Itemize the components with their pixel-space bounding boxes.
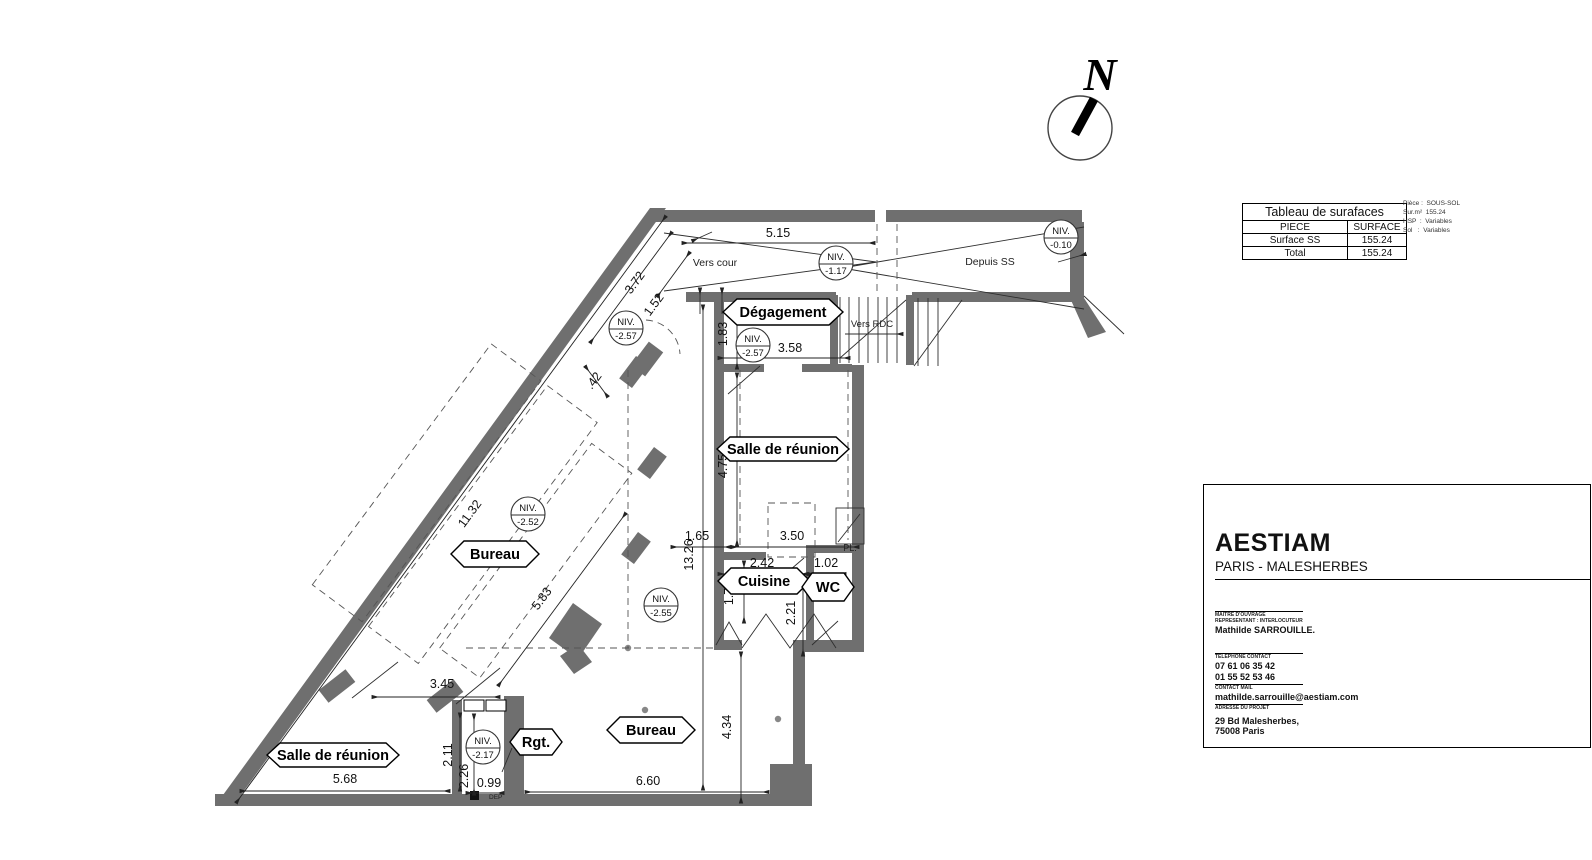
floor-plan-page: .wall{fill:#6f6f6f;} .thin{stroke:#2e2e2…: [0, 0, 1592, 860]
niv-label: NIV.: [744, 334, 762, 345]
dimension-label: 1.83: [716, 322, 730, 346]
cell-piece: Surface SS: [1243, 234, 1348, 247]
mail-value: mathilde.sarrouille@aestiam.com: [1215, 692, 1358, 702]
owner-name: Mathilde SARROUILLE.: [1215, 625, 1315, 635]
dimension-label: 6.60: [636, 774, 660, 788]
dimension-label: 3.50: [780, 529, 804, 543]
dimension-label: 1.52: [641, 291, 667, 319]
dimension-label: 2.21: [784, 601, 798, 625]
niv-label: NIV.: [519, 503, 537, 514]
room-label-text: Bureau: [470, 547, 520, 563]
niv-marker: NIV. -0.10: [1044, 220, 1078, 254]
note-surface: Sur.m² 155.24: [1403, 208, 1460, 217]
dimension-label: 0.99: [477, 776, 501, 790]
room-label-text: Salle de réunion: [727, 442, 839, 458]
room-label-text: WC: [816, 580, 841, 596]
niv-label: NIV.: [474, 736, 492, 747]
owner-label-2: REPRESENTANT : INTERLOCUTEUR: [1215, 619, 1303, 625]
room-label-rgt: Rgt.: [510, 729, 562, 755]
niv-value: -0.10: [1050, 240, 1072, 251]
room-label-text: Bureau: [626, 723, 676, 739]
room-label-text: Rgt.: [522, 735, 550, 751]
room-label-wc: WC: [802, 573, 854, 601]
niv-marker: NIV. -2.52: [511, 497, 545, 531]
niv-value: -2.17: [472, 750, 494, 761]
compass-needle: [1075, 99, 1094, 134]
niv-label: NIV.: [1052, 226, 1070, 237]
dimension-label: 3.45: [430, 677, 454, 691]
niv-label: NIV.: [617, 317, 635, 328]
project-name: PARIS - MALESHERBES: [1215, 559, 1368, 574]
niv-marker: NIV. -2.57: [736, 328, 770, 362]
surface-table-col-surface: SURFACE: [1348, 221, 1407, 234]
dimension-label: 3.58: [778, 341, 802, 355]
dimension-label: 4.34: [720, 715, 734, 739]
vers-cour-label: Vers cour: [693, 257, 738, 269]
pl-label: PL.: [843, 543, 857, 553]
dimension-label: 1.02: [814, 556, 838, 570]
dimension-label: 11.32: [455, 497, 484, 530]
north-label: N: [1082, 49, 1118, 100]
niv-marker: NIV. -2.57: [609, 311, 643, 345]
mail-label: CONTACT MAIL: [1215, 686, 1253, 692]
cell-piece: Total: [1243, 247, 1348, 260]
dimension-label: 5.15: [766, 226, 790, 240]
dimension-label: 3.72: [622, 269, 648, 297]
phone-label: TELEPHONE CONTACT: [1215, 655, 1271, 661]
company-name: AESTIAM: [1215, 529, 1331, 558]
note-sol: Sol : Variables: [1403, 226, 1460, 235]
dimension-label: 5.68: [333, 772, 357, 786]
room-label-bureau-2: Bureau: [607, 717, 695, 743]
phone-1: 07 61 06 35 42: [1215, 661, 1275, 671]
niv-marker: NIV. -2.17: [466, 730, 500, 764]
room-label-cuisine: Cuisine: [718, 568, 810, 594]
table-row: Total 155.24: [1243, 247, 1407, 260]
room-label-bureau: Bureau: [451, 541, 539, 567]
table-row: Surface SS 155.24: [1243, 234, 1407, 247]
surface-table: Tableau de surafaces PIECE SURFACE Surfa…: [1242, 203, 1407, 260]
surface-table-notes: Pièce : SOUS-SOLSur.m² 155.24HSP : Varia…: [1403, 199, 1460, 235]
address-line-2: 75008 Paris: [1215, 726, 1265, 736]
niv-value: -2.52: [517, 517, 539, 528]
room-label-degagement: Dégagement: [723, 299, 843, 325]
niv-value: -2.57: [615, 331, 637, 342]
north-compass: N: [1048, 49, 1118, 160]
niv-marker: NIV. -2.55: [644, 588, 678, 622]
room-labels: Dégagement Salle de réunion Bureau Cuisi…: [267, 299, 854, 767]
cell-surface: 155.24: [1348, 247, 1407, 260]
niv-label: NIV.: [652, 594, 670, 605]
dep-label: DEP: [489, 794, 502, 801]
dimension-label: 5.83: [529, 585, 555, 613]
phone-2: 01 55 52 53 46: [1215, 672, 1275, 682]
vers-rdc-label: Vers RDC: [851, 319, 893, 330]
niv-marker: NIV. -1.17: [819, 246, 853, 280]
niv-value: -2.57: [742, 348, 764, 359]
room-label-text: Dégagement: [739, 305, 826, 321]
surface-table-col-piece: PIECE: [1243, 221, 1348, 234]
title-block: AESTIAM PARIS - MALESHERBES MAITRE D'OUV…: [1203, 484, 1591, 748]
divider: [1215, 579, 1590, 580]
room-label-text: Cuisine: [738, 574, 790, 590]
note-hsp: HSP : Variables: [1403, 217, 1460, 226]
dimension-label: 13.26: [682, 539, 696, 570]
cell-surface: 155.24: [1348, 234, 1407, 247]
dimension-label: 2.11: [441, 743, 455, 766]
niv-value: -1.17: [825, 266, 847, 277]
room-label-salle-de-reunion: Salle de réunion: [717, 437, 849, 461]
niv-value: -2.55: [650, 608, 672, 619]
niv-label: NIV.: [827, 252, 845, 263]
room-label-text: Salle de réunion: [277, 748, 389, 764]
surface-table-title: Tableau de surafaces: [1243, 204, 1407, 221]
note-piece: Pièce : SOUS-SOL: [1403, 199, 1460, 208]
dimension-label: 2.26: [457, 764, 471, 788]
address-line-1: 29 Bd Malesherbes,: [1215, 716, 1299, 726]
depuis-ss-label: Depuis SS: [965, 256, 1015, 268]
room-label-salle-de-reunion-2: Salle de réunion: [267, 743, 399, 767]
address-label: ADRESSE DU PROJET: [1215, 706, 1269, 712]
